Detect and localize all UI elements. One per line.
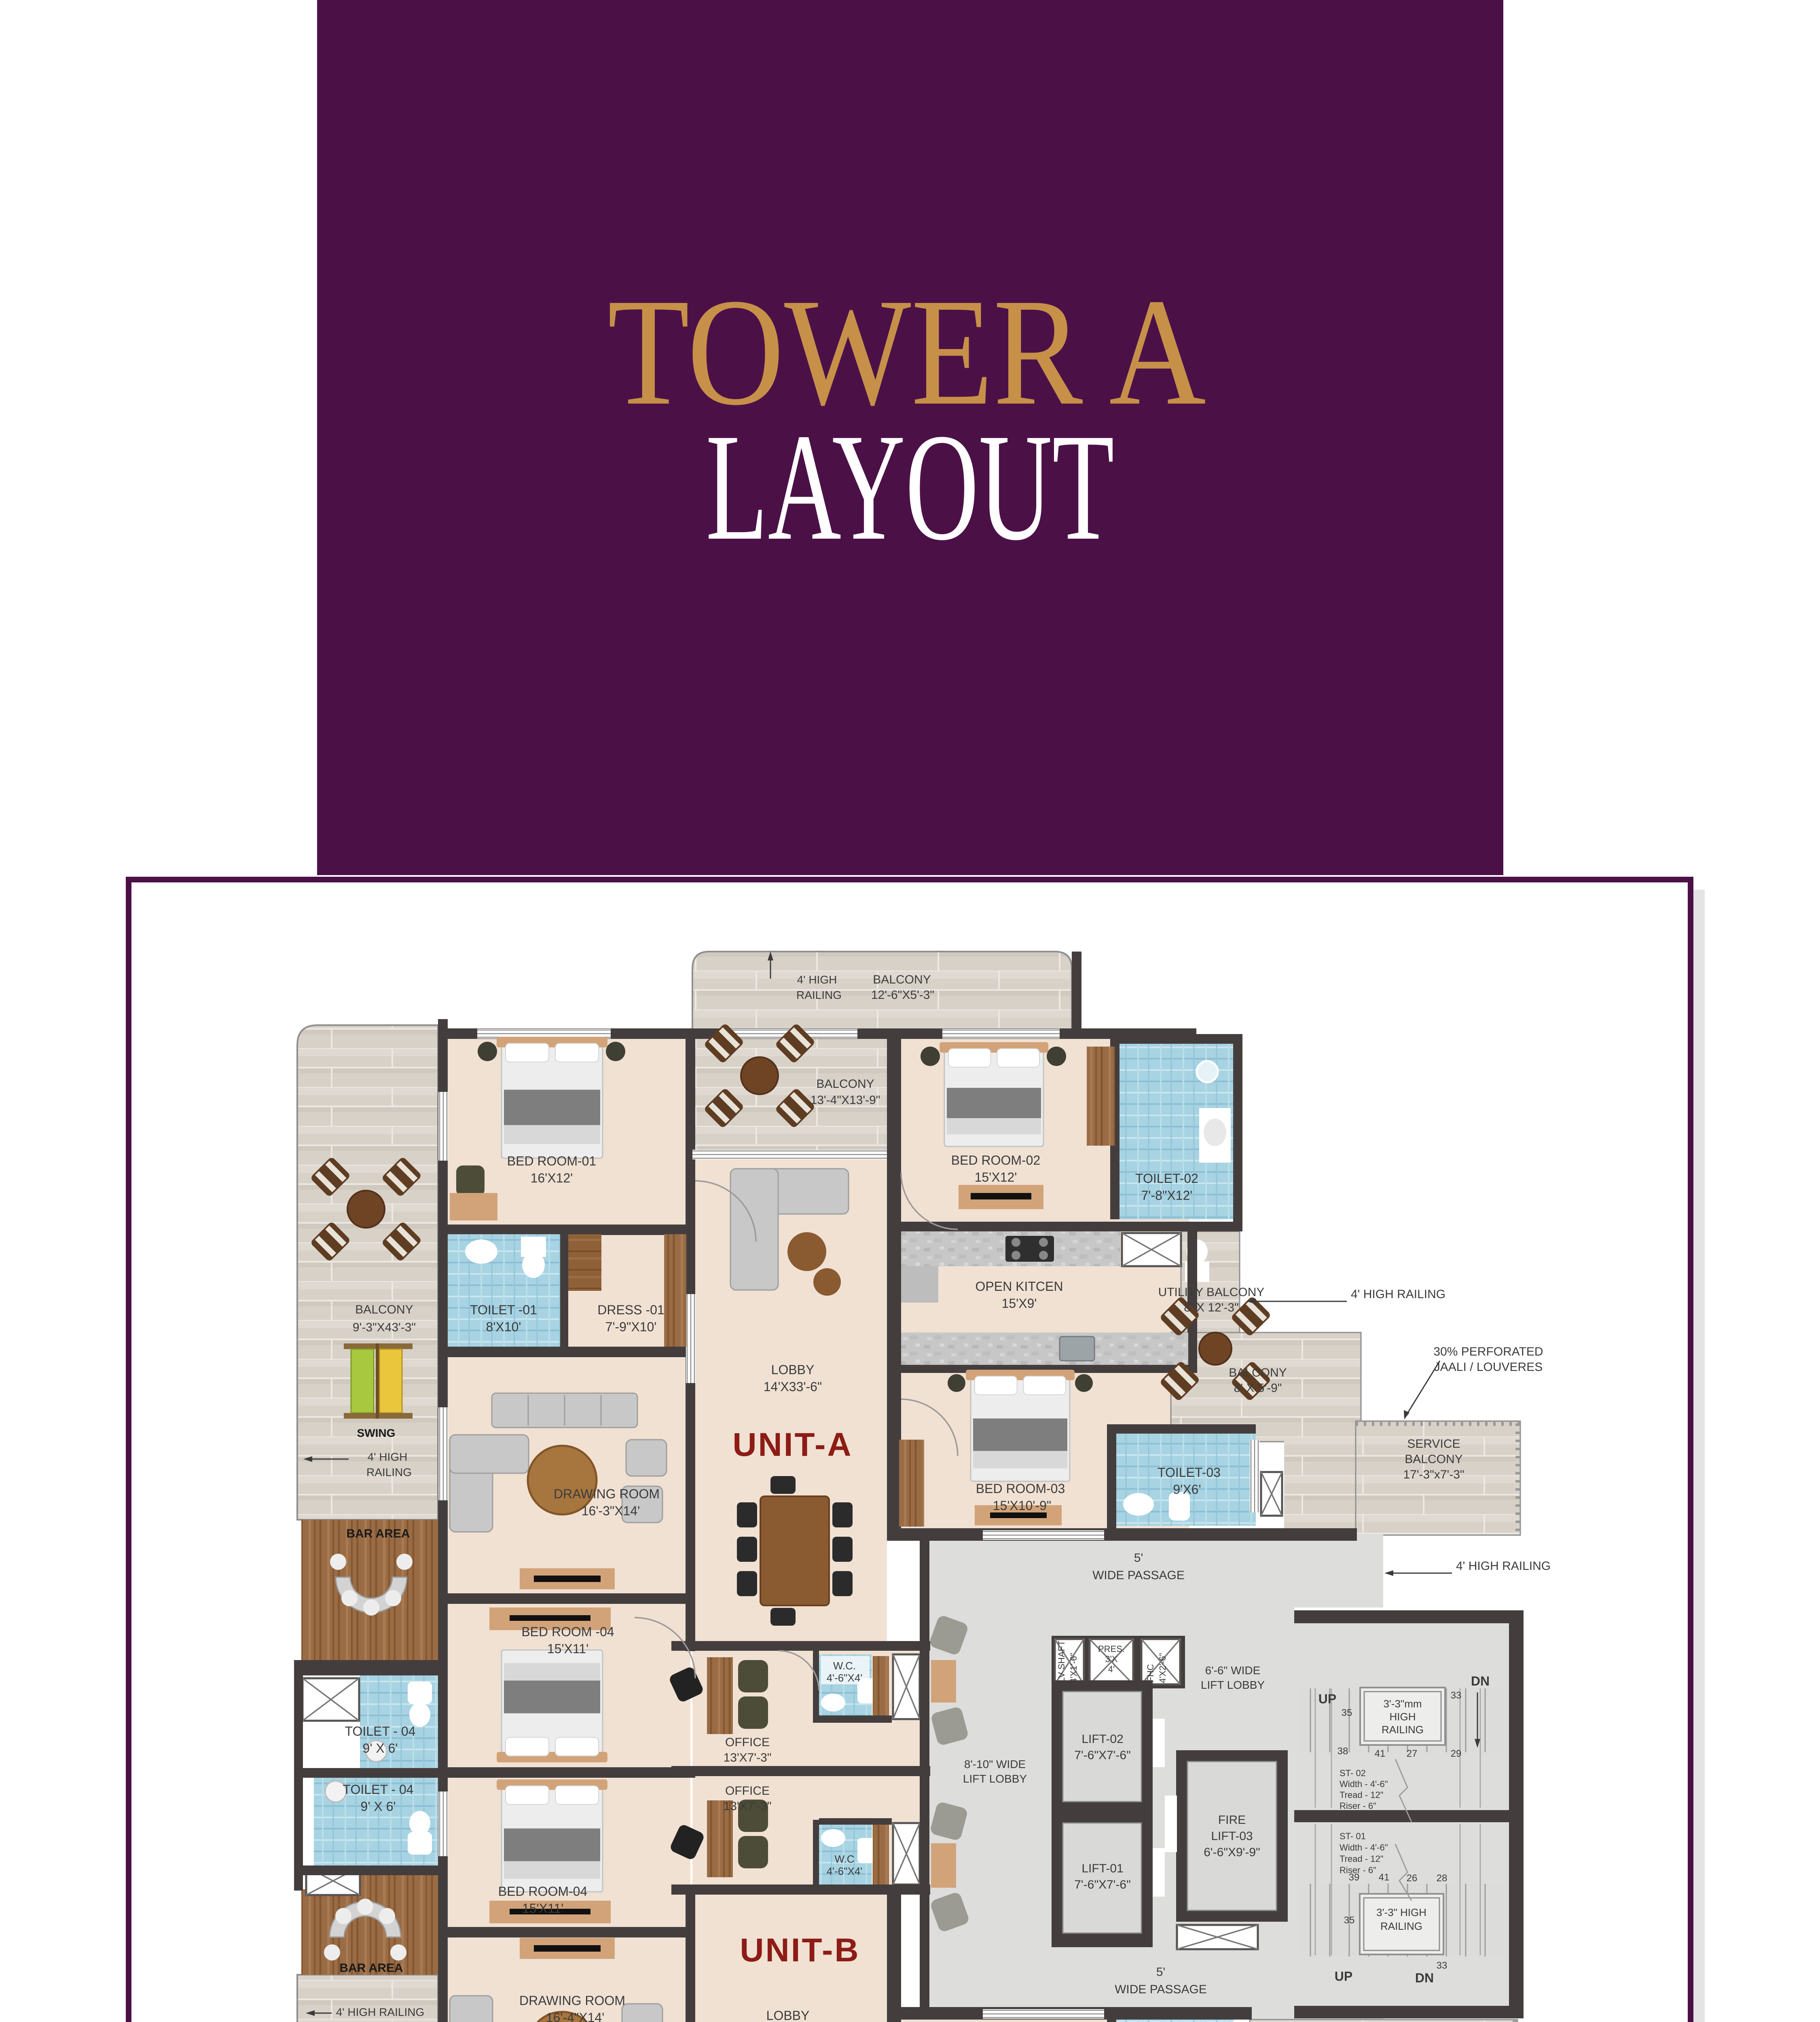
svg-text:BALCONY: BALCONY: [1229, 1366, 1287, 1379]
svg-text:UNIT-B: UNIT-B: [740, 1932, 860, 1969]
svg-text:BAR AREA: BAR AREA: [346, 1527, 410, 1540]
svg-text:WIDE PASSAGE: WIDE PASSAGE: [1092, 1569, 1185, 1582]
svg-text:30% PERFORATED: 30% PERFORATED: [1433, 1345, 1543, 1358]
svg-text:Width - 4'-6": Width - 4'-6": [1340, 1842, 1388, 1853]
svg-text:BED ROOM-02: BED ROOM-02: [951, 1153, 1040, 1168]
svg-text:5': 5': [1156, 1965, 1165, 1979]
svg-text:41: 41: [1375, 1748, 1386, 1759]
svg-text:LOBBY: LOBBY: [766, 2008, 810, 2022]
svg-text:UP: UP: [1318, 1692, 1336, 1706]
svg-text:ST- 02: ST- 02: [1340, 1768, 1366, 1778]
svg-text:12'-6"X5'-3": 12'-6"X5'-3": [871, 988, 934, 1002]
svg-text:35: 35: [1344, 1915, 1355, 1926]
svg-text:7'-9"X10': 7'-9"X10': [605, 1320, 657, 1334]
svg-text:8' X 12'-3": 8' X 12'-3": [1184, 1301, 1239, 1314]
svg-text:W.C: W.C: [834, 1853, 854, 1865]
svg-text:33: 33: [1437, 1960, 1448, 1971]
svg-text:3'-3" HIGH: 3'-3" HIGH: [1376, 1906, 1426, 1918]
svg-text:15'X9': 15'X9': [1002, 1296, 1037, 1311]
svg-text:4'-6"X4': 4'-6"X4': [827, 1865, 863, 1877]
svg-text:WIDE PASSAGE: WIDE PASSAGE: [1115, 1983, 1207, 1996]
svg-text:RAILING: RAILING: [1380, 1920, 1422, 1932]
svg-text:17'-3"x7'-3": 17'-3"x7'-3": [1403, 1468, 1464, 1481]
svg-text:LIFT-01: LIFT-01: [1081, 1862, 1123, 1875]
svg-text:4': 4': [1108, 1664, 1115, 1674]
svg-text:BAR AREA: BAR AREA: [339, 1961, 403, 1975]
svg-text:FHC: FHC: [1145, 1664, 1155, 1682]
svg-text:13'X7'-3": 13'X7'-3": [724, 1751, 772, 1764]
svg-text:26: 26: [1407, 1873, 1418, 1884]
svg-text:15'X12': 15'X12': [975, 1170, 1017, 1184]
svg-text:BALCONY: BALCONY: [816, 1077, 874, 1091]
svg-text:8' X 5'-9": 8' X 5'-9": [1234, 1381, 1282, 1395]
svg-text:Tread - 12": Tread - 12": [1340, 1854, 1384, 1864]
svg-text:DN: DN: [1415, 1971, 1434, 1985]
svg-text:LIFT LOBBY: LIFT LOBBY: [963, 1772, 1027, 1785]
svg-text:Riser - 6": Riser - 6": [1340, 1801, 1376, 1811]
svg-text:DRAWING ROOM: DRAWING ROOM: [554, 1487, 660, 1501]
svg-text:LAYOUT: LAYOUT: [706, 402, 1114, 572]
svg-text:15'X10'-9": 15'X10'-9": [993, 1498, 1052, 1513]
svg-text:7'-8"X12': 7'-8"X12': [1141, 1188, 1193, 1203]
svg-text:4' HIGH RAILING: 4' HIGH RAILING: [1351, 1288, 1445, 1301]
svg-text:16'-4"X14': 16'-4"X14': [546, 2010, 605, 2022]
svg-text:BED ROOM-01: BED ROOM-01: [507, 1154, 596, 1168]
svg-text:29: 29: [1451, 1748, 1462, 1759]
svg-text:38: 38: [1337, 1746, 1348, 1757]
svg-text:TOILET - 04: TOILET - 04: [345, 1724, 416, 1739]
svg-text:15'X11': 15'X11': [547, 1641, 588, 1656]
svg-text:DRESS -01: DRESS -01: [597, 1303, 664, 1317]
svg-text:BED ROOM-03: BED ROOM-03: [976, 1481, 1065, 1496]
svg-text:5': 5': [1134, 1551, 1143, 1565]
svg-text:4'X2'-6": 4'X2'-6": [1158, 1653, 1168, 1683]
svg-text:LV SHAFT: LV SHAFT: [1056, 1640, 1067, 1682]
svg-text:9' X 6': 9' X 6': [363, 1741, 398, 1756]
svg-text:RAILING: RAILING: [796, 989, 842, 1001]
svg-text:LIFT-03: LIFT-03: [1211, 1830, 1253, 1843]
svg-text:39: 39: [1349, 1872, 1360, 1883]
svg-text:LOBBY: LOBBY: [771, 1362, 815, 1377]
svg-text:Tread - 12": Tread - 12": [1340, 1790, 1384, 1800]
svg-text:BED ROOM -04: BED ROOM -04: [521, 1624, 614, 1639]
svg-text:28: 28: [1437, 1873, 1448, 1884]
svg-text:16'-3"X14': 16'-3"X14': [582, 1504, 640, 1518]
svg-text:OFFICE: OFFICE: [725, 1784, 770, 1798]
svg-text:4' HIGH RAILING: 4' HIGH RAILING: [1456, 1559, 1551, 1573]
svg-text:27: 27: [1407, 1748, 1418, 1759]
svg-text:JAALI / LOUVERES: JAALI / LOUVERES: [1434, 1360, 1543, 1374]
svg-text:4' HIGH RAILING: 4' HIGH RAILING: [336, 2006, 425, 2018]
svg-text:14'X33'-6": 14'X33'-6": [764, 1379, 822, 1394]
svg-text:PRES.: PRES.: [1098, 1644, 1125, 1654]
svg-text:7'-6"X7'-6": 7'-6"X7'-6": [1074, 1749, 1130, 1762]
svg-text:SWING: SWING: [357, 1427, 396, 1439]
svg-text:Width - 4'-6": Width - 4'-6": [1340, 1779, 1388, 1789]
svg-text:OPEN KITCEN: OPEN KITCEN: [976, 1279, 1063, 1294]
svg-text:TOILET - 04: TOILET - 04: [343, 1782, 414, 1797]
svg-text:3'-3"mm: 3'-3"mm: [1383, 1698, 1422, 1710]
svg-text:4'-6"X4': 4'-6"X4': [827, 1672, 863, 1684]
svg-text:7'-6"X7'-6": 7'-6"X7'-6": [1074, 1878, 1130, 1891]
svg-text:4'X1'-6": 4'X1'-6": [1069, 1653, 1079, 1683]
svg-text:15'X11': 15'X11': [522, 1901, 563, 1916]
svg-text:35: 35: [1342, 1707, 1352, 1718]
svg-text:BALCONY: BALCONY: [873, 973, 931, 986]
svg-text:TOILET -01: TOILET -01: [470, 1303, 537, 1317]
svg-text:8'X10': 8'X10': [486, 1320, 521, 1334]
svg-text:DRAWING ROOM: DRAWING ROOM: [519, 1993, 625, 2008]
svg-text:9'X6': 9'X6': [1173, 1482, 1201, 1497]
svg-text:FIRE: FIRE: [1218, 1813, 1246, 1827]
svg-text:UP: UP: [1335, 1969, 1352, 1984]
svg-text:8'-10" WIDE: 8'-10" WIDE: [964, 1758, 1026, 1770]
svg-text:16'X12': 16'X12': [531, 1171, 573, 1185]
svg-text:UNIT-A: UNIT-A: [732, 1426, 853, 1463]
svg-text:HIGH: HIGH: [1390, 1711, 1416, 1723]
svg-text:4' HIGH: 4' HIGH: [797, 973, 837, 986]
svg-text:BED ROOM-04: BED ROOM-04: [498, 1884, 587, 1899]
svg-text:UTILITY BALCONY: UTILITY BALCONY: [1158, 1286, 1265, 1299]
svg-text:SERVICE: SERVICE: [1407, 1437, 1460, 1451]
svg-text:13'X7'-3": 13'X7'-3": [724, 1800, 772, 1813]
svg-text:9' X 6': 9' X 6': [361, 1799, 396, 1814]
svg-text:TOILET-03: TOILET-03: [1158, 1465, 1221, 1480]
svg-text:W.C.: W.C.: [833, 1660, 856, 1672]
svg-text:RAILING: RAILING: [1382, 1724, 1424, 1736]
svg-text:LIFT-02: LIFT-02: [1081, 1732, 1123, 1746]
svg-text:4' HIGH: 4' HIGH: [368, 1451, 408, 1463]
svg-text:3'X: 3'X: [1105, 1654, 1117, 1664]
svg-text:BALCONY: BALCONY: [355, 1303, 413, 1316]
svg-text:33: 33: [1451, 1690, 1462, 1701]
svg-text:41: 41: [1379, 1872, 1390, 1883]
svg-text:RAILING: RAILING: [366, 1466, 412, 1478]
svg-text:BALCONY: BALCONY: [1405, 1453, 1462, 1466]
svg-text:DN: DN: [1471, 1674, 1490, 1688]
svg-text:OFFICE: OFFICE: [725, 1736, 770, 1749]
svg-text:9'-3"X43'-3": 9'-3"X43'-3": [353, 1321, 416, 1334]
svg-text:LIFT LOBBY: LIFT LOBBY: [1201, 1679, 1265, 1691]
svg-text:ST- 01: ST- 01: [1340, 1831, 1366, 1841]
svg-text:13'-4"X13'-9": 13'-4"X13'-9": [811, 1093, 880, 1107]
svg-text:6'-6" WIDE: 6'-6" WIDE: [1205, 1664, 1261, 1677]
svg-text:6'-6"X9'-9": 6'-6"X9'-9": [1204, 1846, 1260, 1859]
svg-text:TOILET-02: TOILET-02: [1135, 1171, 1198, 1186]
